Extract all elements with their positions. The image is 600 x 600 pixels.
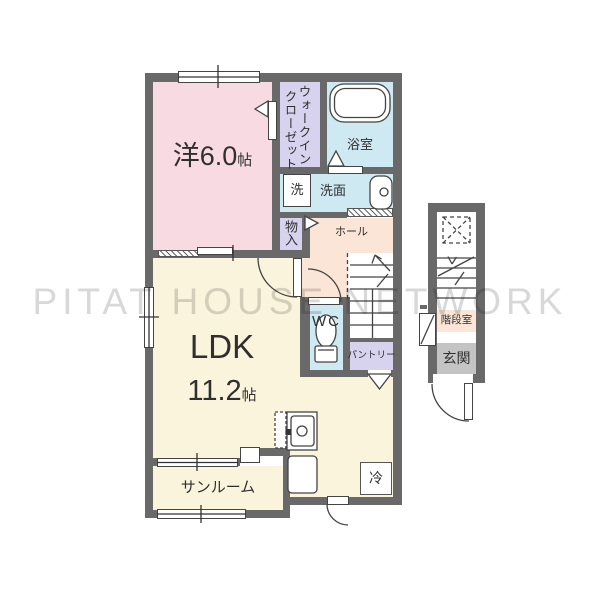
wic-label-line1: ウォークイン [297,85,310,166]
entrance-door-diagonal [421,315,434,344]
annex-stairs-icon [437,257,476,299]
stair-room-label: 階段室 [435,315,478,326]
wic-label-line2: クローゼット [283,90,296,171]
bathtub-icon [330,84,390,122]
fridge-label: 冷 [360,471,392,485]
wc-door-arc [308,269,341,302]
wic-door-triangle [255,101,268,117]
washstand-sink-icon [370,176,392,209]
entrance-label: 玄関 [437,351,476,365]
ldk-label: LDK 11.2帖 [147,330,297,406]
annex-door-arc [432,384,469,421]
western-room-label: 洋6.0帖 [153,143,272,170]
window-marks [139,65,260,523]
washstand-label: 洗面 [320,184,346,197]
laundry-label: 洗 [283,183,311,196]
pantry-door-triangle [368,374,391,389]
sunroom-label: サンルーム [153,480,283,495]
hall-label: ホール [310,227,393,238]
storage-label: 物入 [284,220,297,246]
bath-label: 浴室 [327,138,393,151]
wc-label: WC [310,314,343,329]
pantry-label: パントリー [347,351,396,361]
ldk-back-door-arc [327,504,348,525]
floor-plan: 洋6.0帖 ウォークイン クローゼット 浴室 洗 洗面 物入 ホール WC パン… [0,0,600,600]
main-stairs-icon [348,253,394,338]
ldk-hall-door-arc [258,258,297,297]
bath-door-triangle [328,151,344,166]
stairwell-void-icon [443,217,470,243]
